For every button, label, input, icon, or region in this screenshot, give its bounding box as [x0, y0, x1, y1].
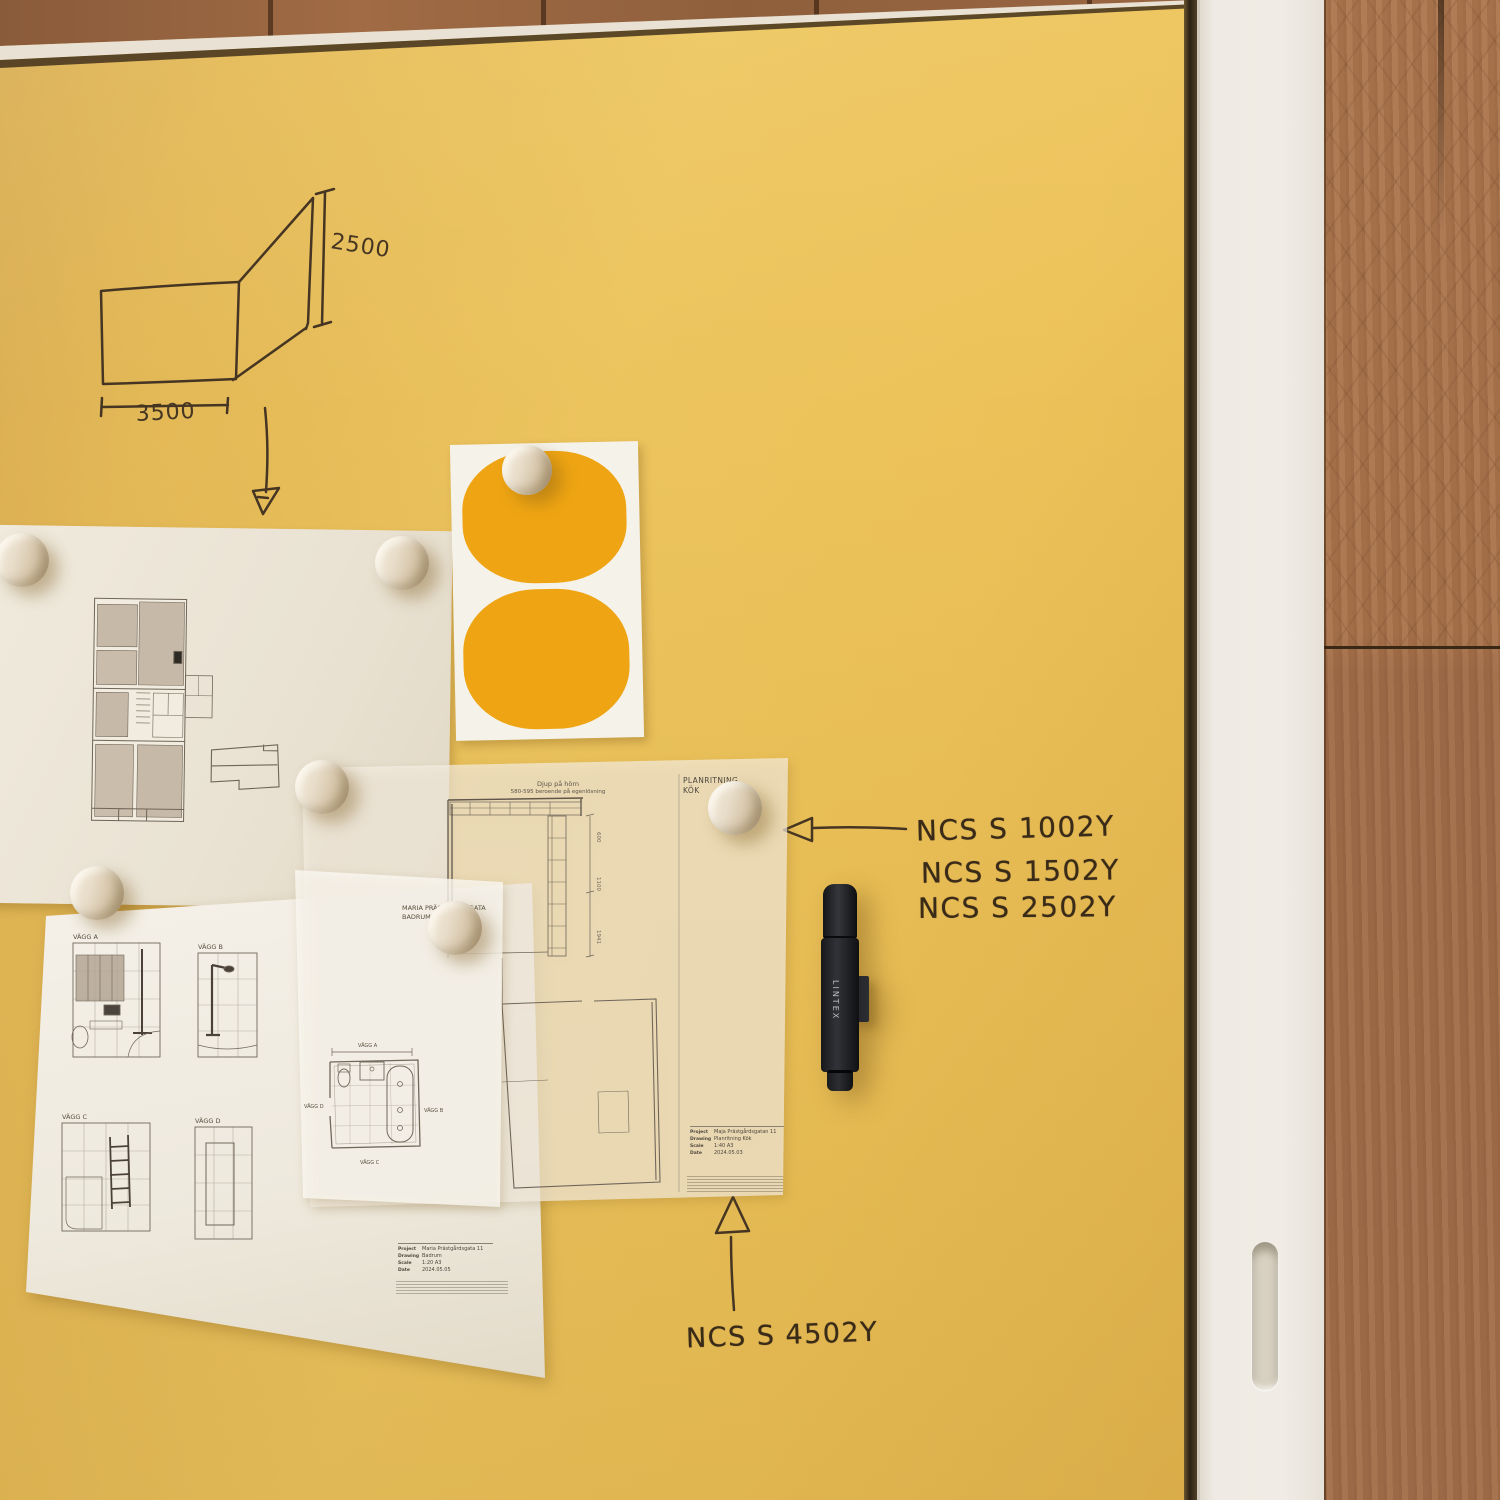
kitchen-dim-1: 600	[595, 832, 601, 843]
elevation-label-a: VÄGG A	[73, 932, 99, 941]
kitchen-dim-3: 1941	[595, 930, 601, 944]
wood-horizontal-seam	[1324, 646, 1500, 649]
elevation-label-c: VÄGG C	[62, 1112, 88, 1121]
elevation-label-b: VÄGG B	[198, 942, 223, 951]
wooden-magnet	[295, 760, 349, 814]
elevations-fine-print	[396, 1281, 508, 1296]
whiteboard-marker: LINTEX	[818, 884, 866, 1098]
white-cabinet-panel	[1197, 0, 1325, 1500]
kitchen-dim-2: 1100	[595, 877, 601, 891]
kitchen-fine-print	[687, 1176, 787, 1192]
wooden-magnet	[502, 445, 552, 495]
bathroom-wall-right: VÄGG B	[424, 1107, 444, 1114]
elevation-label-d: VÄGG D	[195, 1116, 221, 1125]
photo-scene: 2500 3500 NCS S 1002Y NCS S 1502Y NCS S …	[0, 0, 1500, 1500]
panel-edge-highlight	[1197, 0, 1200, 1500]
marker-cap	[823, 884, 857, 939]
ncs-note-1: NCS S 1002Y	[916, 809, 1116, 847]
marker-tail	[827, 1070, 853, 1091]
wooden-magnet	[375, 536, 429, 590]
wooden-magnet	[70, 866, 124, 920]
ncs-note-2: NCS S 1502Y	[921, 853, 1120, 889]
wood-vertical-seam	[1438, 0, 1444, 235]
bathroom-wall-bottom: VÄGG C	[360, 1159, 380, 1166]
marker-body	[821, 938, 859, 1072]
wood-chevron-grain	[1324, 0, 1500, 646]
recessed-oval-handle	[1252, 1242, 1278, 1390]
wooden-magnet	[708, 781, 762, 835]
kitchen-title-block: ProjectMaja Prästgårdsgatan 11 DrawingPl…	[690, 1126, 785, 1157]
bathroom-wall-top: VÄGG A	[358, 1042, 378, 1049]
elevations-title-block: ProjectMaria Prästgårdsgata 11 DrawingBa…	[398, 1243, 493, 1274]
oak-wall-panel	[1324, 0, 1500, 1500]
wooden-magnet	[428, 901, 482, 955]
bathroom-wall-left: VÄGG D	[304, 1103, 324, 1110]
marker-brand-label: LINTEX	[831, 980, 840, 1020]
sticker-squircle-bottom	[462, 587, 631, 730]
sticker-card	[450, 441, 644, 741]
board-frame-gap	[1184, 0, 1197, 1500]
ncs-note-3: NCS S 2502Y	[918, 890, 1117, 925]
